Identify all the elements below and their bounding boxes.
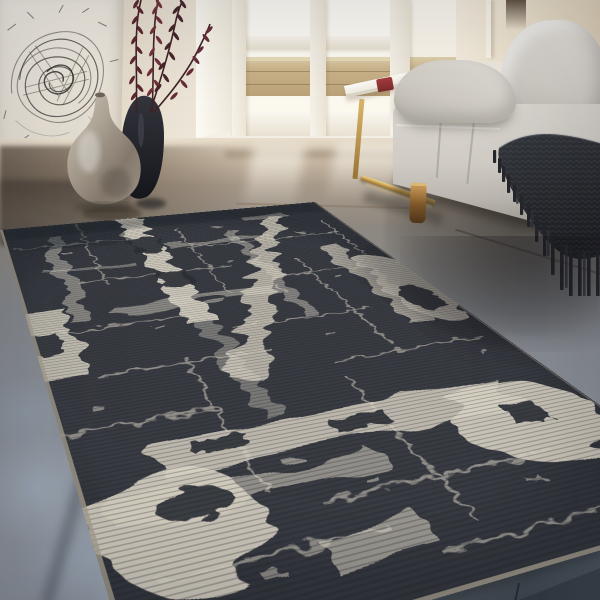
living-room-product-photo: Living room photo of a distressed charco…	[0, 0, 600, 600]
photo-vignette	[0, 0, 600, 600]
